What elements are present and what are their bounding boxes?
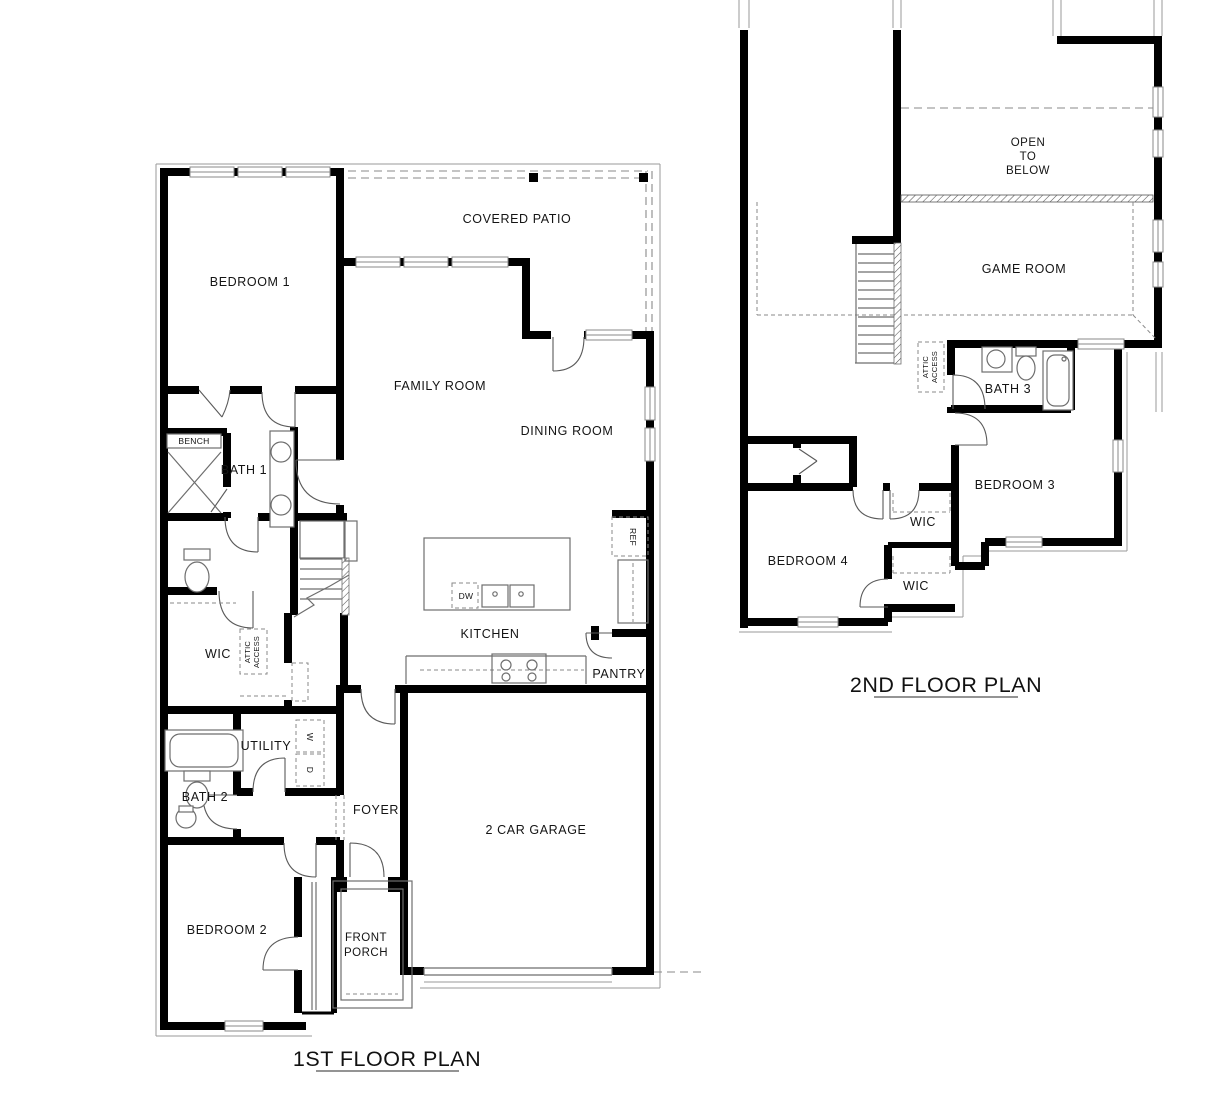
second-floor-plan: OPEN TO BELOW GAME ROOM ATTIC ACCESS BAT…	[739, 0, 1163, 697]
walls-second-floor	[744, 30, 1162, 628]
label-washer: W	[305, 733, 315, 741]
room-label-family-room: FAMILY ROOM	[394, 379, 486, 393]
room-label-bedroom4: BEDROOM 4	[768, 554, 848, 568]
patio-post	[639, 173, 648, 182]
label-bench: BENCH	[178, 436, 209, 446]
bifold-door	[799, 449, 817, 474]
floor-plan-drawing: BEDROOM 1 COVERED PATIO FAMILY ROOM DINI…	[0, 0, 1220, 1099]
label-dishwasher: DW	[459, 591, 474, 601]
shower-icon	[168, 452, 221, 513]
room-label-covered-patio: COVERED PATIO	[463, 212, 572, 226]
slab-outline-second-floor	[739, 0, 1162, 632]
room-label-wic: WIC	[205, 647, 231, 661]
label-open-to-below: BELOW	[1006, 165, 1050, 177]
kitchen-fixtures	[406, 517, 648, 684]
toilet-tank	[184, 771, 210, 781]
room-label-garage: 2 CAR GARAGE	[486, 823, 587, 837]
walls-first-floor	[160, 168, 654, 1030]
bath2-fixtures	[165, 720, 324, 828]
room-label-bedroom2: BEDROOM 2	[187, 923, 267, 937]
label-attic-access: ATTIC	[243, 641, 252, 663]
first-floor-title: 1ST FLOOR PLAN	[293, 1047, 481, 1071]
toilet-tank	[1016, 347, 1036, 356]
range-icon	[492, 654, 546, 683]
bath3-fixtures	[982, 347, 1073, 410]
label-open-to-below: OPEN	[1011, 137, 1046, 149]
staircase-second-floor	[855, 243, 901, 364]
room-label-front-porch: FRONT	[345, 932, 387, 944]
railing-hatch	[901, 195, 1153, 202]
labels-second-floor: OPEN TO BELOW GAME ROOM ATTIC ACCESS BAT…	[768, 137, 1067, 697]
label-attic-access: ACCESS	[252, 636, 261, 668]
label-dryer: D	[305, 767, 315, 773]
room-label-wic-bedroom3: WIC	[910, 515, 936, 529]
label-attic-access: ATTIC	[921, 356, 930, 378]
label-refrigerator: REF	[628, 528, 638, 546]
toilet-icon	[1017, 356, 1035, 380]
garage-door	[424, 968, 612, 975]
patio-post	[529, 173, 538, 182]
kitchen-island	[424, 538, 570, 610]
first-floor-plan: BEDROOM 1 COVERED PATIO FAMILY ROOM DINI…	[156, 164, 702, 1071]
toilet-icon	[185, 562, 209, 592]
windows-first-floor	[190, 167, 655, 1031]
room-label-foyer: FOYER	[353, 803, 399, 817]
porch-wall-stub	[332, 877, 347, 892]
room-label-utility: UTILITY	[241, 739, 292, 753]
sink-icon	[987, 350, 1005, 368]
room-label-front-porch: PORCH	[344, 947, 388, 959]
game-room-ceiling-dashed	[757, 202, 1157, 340]
room-label-wic-bedroom4: WIC	[903, 579, 929, 593]
room-label-bath2: BATH 2	[182, 790, 228, 804]
room-label-bedroom1: BEDROOM 1	[210, 275, 290, 289]
sink-icon	[271, 495, 291, 515]
room-label-game-room: GAME ROOM	[982, 262, 1067, 276]
room-label-pantry: PANTRY	[592, 667, 645, 681]
room-label-bath3: BATH 3	[985, 382, 1031, 396]
porch-wall-stub	[388, 877, 403, 892]
label-open-to-below: TO	[1020, 151, 1037, 163]
room-label-dining-room: DINING ROOM	[521, 424, 614, 438]
sink-icon	[271, 442, 291, 462]
room-label-kitchen: KITCHEN	[460, 627, 519, 641]
second-floor-title: 2ND FLOOR PLAN	[850, 673, 1042, 697]
floor-plan-page: BEDROOM 1 COVERED PATIO FAMILY ROOM DINI…	[0, 0, 1220, 1099]
label-attic-access: ACCESS	[930, 351, 939, 383]
room-label-bedroom3: BEDROOM 3	[975, 478, 1055, 492]
covered-patio-boundary	[348, 171, 652, 331]
staircase-first-floor	[294, 521, 357, 617]
room-label-bath1: BATH 1	[221, 463, 267, 477]
toilet-tank	[184, 549, 210, 560]
misc-details-first-floor	[170, 603, 702, 1010]
